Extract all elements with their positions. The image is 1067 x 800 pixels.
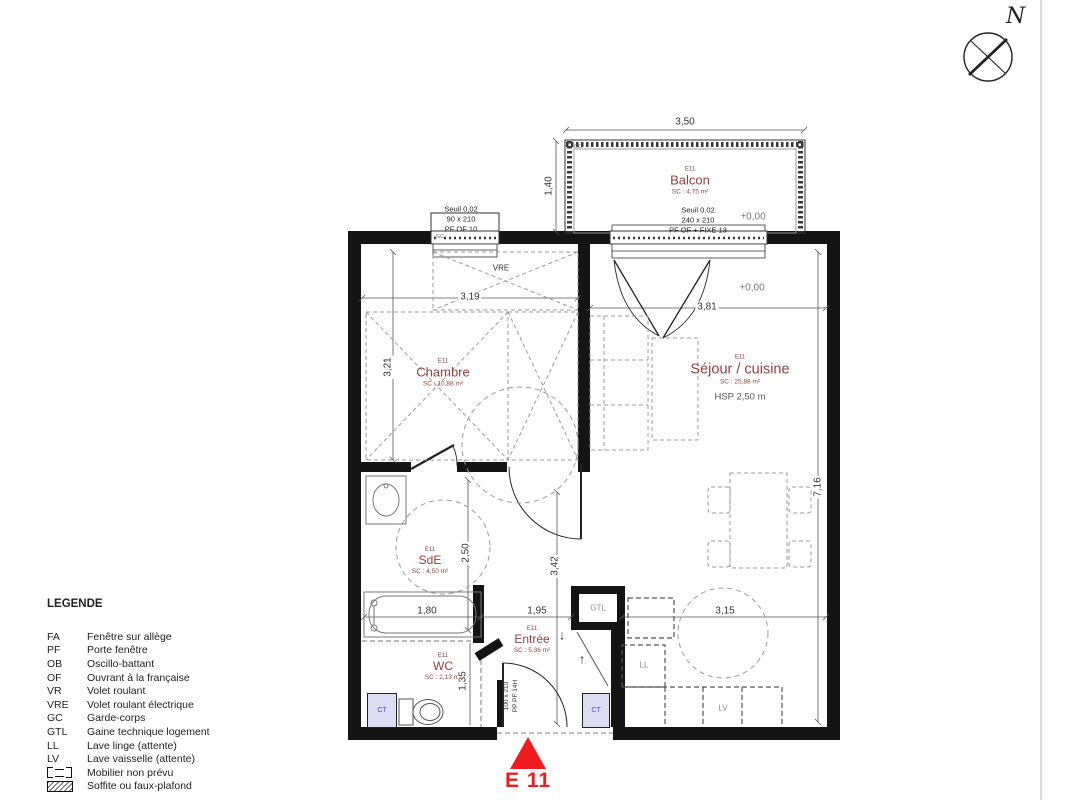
swing-arrow-down: ↓ — [559, 628, 566, 643]
dim-sde-height: 2,50 — [461, 541, 472, 564]
wall-bottom-right — [613, 727, 840, 740]
room-name: Entrée — [514, 633, 550, 647]
gc-balcony-tag: GC — [574, 144, 582, 150]
entry-door-jamb — [497, 680, 503, 727]
room-area: SC : 25,88 m² — [690, 378, 789, 385]
room-area: SC : 4,50 m² — [412, 568, 448, 575]
compass-icon — [964, 33, 1012, 81]
dim-kitchen-width: 3,15 — [713, 606, 736, 617]
legend-abbr: OF — [47, 672, 87, 684]
size-text: 90 x 210 — [444, 214, 477, 224]
legend-row-mobilier: Mobilier non prévu — [47, 766, 317, 780]
bracket-right-icon — [66, 767, 72, 778]
dim-balcon-depth: 1,40 — [544, 174, 555, 197]
north-letter: N — [1006, 4, 1025, 29]
room-area: SC : 2,13 m² — [425, 674, 461, 681]
legend-row-pf: PF Porte fenêtre — [47, 644, 317, 658]
legend-row-gtl: GTL Gaine technique logement — [47, 725, 317, 739]
legend-abbr: FA — [47, 631, 87, 643]
room-label-chambre: E11 Chambre SC : 10,88 m² — [416, 358, 469, 387]
legend-abbr: LL — [47, 740, 87, 752]
wall-right — [827, 231, 840, 740]
size-text: 100 x 210 — [503, 680, 512, 712]
legend-label: Gaine technique logement — [87, 726, 210, 738]
swing-arrow-up: ↑ — [579, 652, 586, 667]
dim-entree-width: 1,95 — [525, 606, 548, 617]
dim-balcon-width: 3,50 — [673, 117, 696, 128]
entry-marker-triangle — [510, 737, 546, 769]
vre-tag: VRE — [493, 264, 509, 273]
room-name: WC — [425, 660, 461, 674]
wall-corridor-west — [473, 585, 484, 643]
ct-label: CT — [591, 707, 600, 714]
wall-chambre-sejour — [578, 244, 590, 472]
legend-row-lv: LV Lave vaisselle (attente) — [47, 752, 317, 766]
wall-top-middle — [497, 231, 612, 244]
legend-title: LEGENDE — [47, 598, 317, 610]
washbasin-icon — [366, 476, 406, 524]
room-ceiling-height: HSP 2,50 m — [690, 393, 789, 404]
room-label-entree: E11 Entrée SC : 5,36 m² — [514, 626, 550, 654]
ct-label: CT — [377, 707, 386, 714]
floor-plan-canvas: N E11 Balcon SC : 4,75 m² E11 Chambre SC… — [0, 0, 1067, 800]
bracket-mid-icon — [55, 769, 64, 777]
room-area: SC : 4,75 m² — [670, 188, 710, 195]
wall-left — [348, 231, 361, 740]
legend-label: Garde-corps — [87, 712, 145, 724]
soffite-hatch-icon — [47, 781, 87, 792]
legend-label: Porte fenêtre — [87, 644, 148, 656]
room-area: SC : 10,88 m² — [416, 380, 469, 387]
toilet-icon — [399, 699, 443, 725]
legend-label: Lave linge (attente) — [87, 740, 177, 752]
legend-row-soffite: Soffite ou faux-plafond — [47, 780, 317, 794]
legend-abbr: GTL — [47, 726, 87, 738]
room-name: Chambre — [416, 365, 469, 380]
room-label-sde: E11 SdE SC : 4,50 m² — [412, 547, 448, 575]
legend-row-vr: VR Volet roulant — [47, 684, 317, 698]
legend-label: Volet roulant électrique — [87, 699, 194, 711]
entry-door-label: 100 x 210 PP PF 14H — [503, 680, 521, 712]
ll-tag: LL — [640, 661, 649, 670]
dim-sejour-width: 3,81 — [695, 302, 718, 313]
type-text: PP PF 14H — [512, 680, 521, 712]
unit-marker-label: E 11 — [505, 769, 551, 793]
room-area: SC : 5,36 m² — [514, 647, 550, 654]
chambre-window-label: Seuil 0,02 90 x 210 PF OF 10 — [444, 204, 477, 233]
legend-label: Fenêtre sur allège — [87, 631, 172, 643]
room-name: Séjour / cuisine — [690, 361, 789, 378]
lv-tag: LV — [718, 704, 727, 713]
seuil-text: Seuil 0,02 — [444, 204, 477, 214]
dim-wc-height: 1,35 — [458, 669, 469, 692]
legend-abbr: LV — [47, 753, 87, 765]
legend-row-of: OF Ouvrant à la française — [47, 671, 317, 685]
room-name: Balcon — [670, 173, 710, 188]
wall-sde-north-a — [361, 462, 411, 472]
ct-closet-right: CT — [582, 693, 610, 728]
threshold-lines — [362, 641, 613, 733]
balcony-door-label: Seuil 0,02 240 x 210 PF OF + FIXE 13 — [669, 205, 727, 234]
mobilier-symbol-icon — [47, 767, 87, 778]
legend-abbr: VRE — [47, 699, 87, 711]
legend-abbr: OB — [47, 658, 87, 670]
level-balcon: +0,00 — [740, 212, 765, 223]
legend-label: Lave vaisselle (attente) — [87, 753, 195, 765]
legend-row-fa: FA Fenêtre sur allège — [47, 630, 317, 644]
level-sejour: +0,00 — [739, 283, 764, 294]
wall-entree-east — [611, 630, 625, 727]
dim-chambre-width: 3,19 — [458, 292, 481, 303]
seuil-text: Seuil 0,02 — [669, 205, 727, 215]
ct-closet-left: CT — [367, 693, 397, 728]
legend-abbr: PF — [47, 644, 87, 656]
type-text: PF OF 10 — [444, 224, 477, 234]
wall-bottom-left — [348, 727, 497, 740]
dim-entree-height: 3,42 — [550, 554, 561, 577]
room-code: E11 — [690, 355, 789, 362]
hatch-swatch-icon — [47, 781, 73, 792]
legend-row-gc: GC Garde-corps — [47, 712, 317, 726]
gtl-tag: GTL — [590, 604, 606, 613]
legend-label: Oscillo-battant — [87, 658, 154, 670]
legend-label: Ouvrant à la française — [87, 672, 190, 684]
bracket-left-icon — [47, 767, 53, 778]
legend-row-ll: LL Lave linge (attente) — [47, 739, 317, 753]
page-edge-line — [1040, 0, 1042, 800]
dim-chambre-height: 3,21 — [383, 355, 394, 378]
size-text: 240 x 210 — [669, 215, 727, 225]
legend-label: Soffite ou faux-plafond — [87, 780, 192, 792]
room-label-balcon: E11 Balcon SC : 4,75 m² — [670, 166, 710, 195]
legend-abbr: VR — [47, 685, 87, 697]
legend-label: Volet roulant — [87, 685, 145, 697]
legend-row-ob: OB Oscillo-battant — [47, 657, 317, 671]
dim-plan-height: 7,16 — [813, 475, 824, 498]
room-name: SdE — [412, 554, 448, 568]
legend-row-vre: VRE Volet roulant électrique — [47, 698, 317, 712]
room-label-wc: E11 WC SC : 2,13 m² — [425, 653, 461, 681]
wall-diagonal — [477, 642, 501, 657]
room-label-sejour: E11 Séjour / cuisine SC : 25,88 m² HSP 2… — [690, 355, 789, 404]
wall-sde-north-b — [457, 462, 507, 472]
legend: LEGENDE FA Fenêtre sur allège PF Porte f… — [47, 598, 317, 793]
gc-window-tag: GC — [436, 234, 444, 240]
legend-abbr: GC — [47, 712, 87, 724]
legend-label: Mobilier non prévu — [87, 767, 173, 779]
type-text: PF OF + FIXE 13 — [669, 225, 727, 235]
dim-bath-width: 1,80 — [415, 606, 438, 617]
